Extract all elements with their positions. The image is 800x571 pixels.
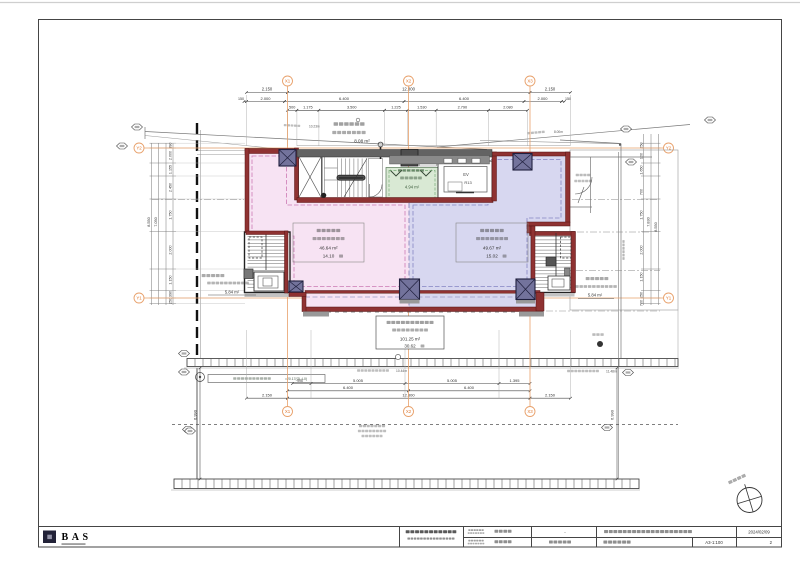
- svg-text:5.84 m²: 5.84 m²: [225, 290, 240, 295]
- svg-text:6.400: 6.400: [339, 96, 350, 101]
- svg-text:6.990: 6.990: [610, 409, 615, 420]
- svg-text:5.005: 5.005: [447, 378, 458, 383]
- svg-text:X1: X1: [285, 409, 291, 414]
- svg-text:1.530: 1.530: [417, 106, 427, 110]
- svg-text:995: 995: [297, 379, 303, 383]
- svg-text:7.050: 7.050: [154, 217, 158, 227]
- svg-text:49.67 m²: 49.67 m²: [483, 246, 502, 251]
- svg-text:X3: X3: [527, 79, 533, 84]
- svg-text:2.150: 2.150: [545, 87, 556, 92]
- svg-text:=20.17(GL:L0): =20.17(GL:L0): [285, 377, 307, 381]
- svg-text:46.64 m²: 46.64 m²: [319, 246, 338, 251]
- svg-text:2.000: 2.000: [640, 245, 644, 254]
- svg-text:250: 250: [169, 298, 173, 304]
- svg-text:8.550: 8.550: [654, 222, 658, 232]
- svg-text:3.500: 3.500: [347, 106, 357, 110]
- svg-text:X2: X2: [406, 409, 412, 414]
- svg-text:2024/02/09: 2024/02/09: [748, 530, 770, 535]
- svg-text:15.02: 15.02: [486, 254, 498, 259]
- svg-text:1.150: 1.150: [169, 275, 173, 284]
- svg-text:250: 250: [640, 292, 644, 298]
- svg-text:X2: X2: [406, 79, 412, 84]
- svg-text:4.94 m²: 4.94 m²: [405, 185, 420, 190]
- svg-text:2.150: 2.150: [545, 392, 556, 397]
- svg-text:6.400: 6.400: [459, 96, 470, 101]
- svg-text:100: 100: [640, 153, 644, 159]
- svg-text:2.150: 2.150: [262, 392, 273, 397]
- svg-text:11.48m: 11.48m: [606, 370, 617, 374]
- svg-text:2.150: 2.150: [262, 87, 273, 92]
- svg-text:2.450: 2.450: [169, 183, 173, 192]
- svg-text:1.650: 1.650: [640, 165, 644, 174]
- svg-text:8.08 m²: 8.08 m²: [354, 139, 370, 144]
- svg-text:10.23m: 10.23m: [309, 125, 320, 129]
- svg-text:1.750: 1.750: [169, 210, 173, 219]
- svg-text:6.990: 6.990: [193, 409, 198, 420]
- svg-text:2.080: 2.080: [503, 106, 513, 110]
- svg-text:1.150: 1.150: [640, 272, 644, 281]
- svg-text:EV: EV: [463, 172, 469, 177]
- svg-text:10.44m: 10.44m: [396, 369, 407, 373]
- svg-text:B A S: B A S: [62, 532, 89, 543]
- svg-text:5.005: 5.005: [353, 378, 364, 383]
- svg-text:1.225: 1.225: [391, 106, 401, 110]
- svg-text:2.000: 2.000: [169, 151, 173, 160]
- svg-text:Y1: Y1: [666, 296, 672, 301]
- svg-text:150: 150: [565, 97, 571, 101]
- svg-text:1.175: 1.175: [303, 106, 313, 110]
- svg-text:8.00m: 8.00m: [554, 130, 563, 134]
- svg-text:390: 390: [169, 291, 173, 297]
- svg-text:14.10: 14.10: [323, 254, 335, 259]
- svg-text:2.000: 2.000: [169, 245, 173, 254]
- svg-text:1.395: 1.395: [509, 378, 520, 383]
- svg-text:6.400: 6.400: [464, 385, 475, 390]
- svg-text:X3: X3: [527, 409, 533, 414]
- svg-text:2.790: 2.790: [458, 106, 468, 110]
- svg-text:30.62: 30.62: [404, 344, 416, 349]
- svg-text:8.550: 8.550: [147, 217, 151, 227]
- svg-text:A3-1:100: A3-1:100: [705, 540, 723, 545]
- svg-text:1.750: 1.750: [640, 210, 644, 219]
- svg-text:5.84 m²: 5.84 m²: [588, 293, 603, 298]
- svg-text:R13: R13: [464, 180, 472, 185]
- svg-text:700: 700: [640, 189, 644, 195]
- svg-text:1.155: 1.155: [169, 165, 173, 174]
- svg-text:2.000: 2.000: [537, 96, 548, 101]
- svg-text:X1: X1: [285, 79, 291, 84]
- svg-text:7.830: 7.830: [647, 217, 651, 227]
- svg-text:101.25 m²: 101.25 m²: [400, 337, 421, 342]
- svg-text:500: 500: [289, 106, 295, 110]
- svg-text:Y1: Y1: [136, 296, 142, 301]
- svg-text:6.400: 6.400: [343, 385, 354, 390]
- svg-text:2.000: 2.000: [260, 96, 271, 101]
- svg-text:700: 700: [640, 300, 644, 306]
- svg-text:150: 150: [238, 97, 244, 101]
- svg-text:Y2: Y2: [136, 146, 142, 151]
